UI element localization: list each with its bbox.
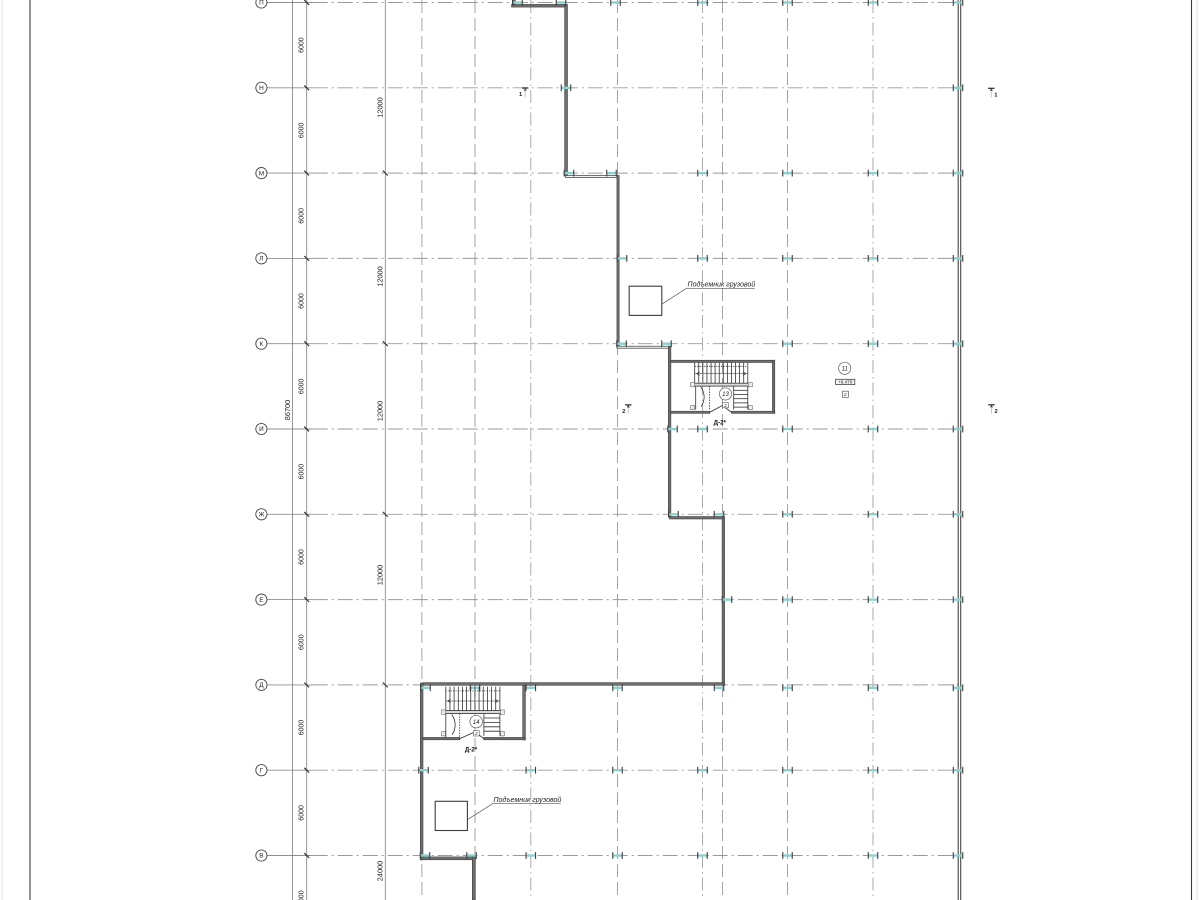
- svg-text:6000: 6000: [299, 123, 306, 139]
- svg-text:6000: 6000: [299, 634, 306, 650]
- svg-text:24000: 24000: [375, 861, 384, 882]
- svg-text:2: 2: [994, 409, 997, 415]
- svg-text:13: 13: [722, 392, 729, 398]
- svg-text:11: 11: [842, 367, 848, 373]
- svg-text:К: К: [260, 341, 264, 348]
- svg-text:Д-2*: Д-2*: [465, 747, 478, 754]
- svg-text:2: 2: [723, 403, 727, 408]
- svg-text:Д-2*: Д-2*: [714, 419, 727, 426]
- svg-text:2: 2: [622, 409, 625, 415]
- svg-text:12000: 12000: [375, 266, 384, 287]
- svg-text:М: М: [259, 170, 264, 177]
- svg-text:6000: 6000: [299, 37, 306, 53]
- svg-text:6000: 6000: [299, 805, 306, 821]
- svg-text:Подъемник грузовой: Подъемник грузовой: [494, 796, 562, 804]
- svg-text:6000: 6000: [299, 464, 306, 480]
- svg-text:6000: 6000: [299, 720, 306, 736]
- svg-text:И: И: [259, 426, 264, 433]
- svg-text:12000: 12000: [375, 565, 384, 586]
- svg-text:Д: Д: [259, 682, 264, 689]
- svg-text:6000: 6000: [299, 549, 306, 565]
- svg-text:+9.470: +9.470: [838, 380, 853, 385]
- svg-text:86700: 86700: [283, 400, 292, 421]
- svg-text:Н: Н: [259, 85, 264, 92]
- svg-text:2: 2: [474, 731, 478, 736]
- svg-text:Подъемник грузовой: Подъемник грузовой: [688, 281, 756, 289]
- svg-text:14: 14: [473, 720, 480, 726]
- svg-text:6000: 6000: [299, 293, 306, 309]
- svg-text:12000: 12000: [375, 401, 384, 422]
- svg-text:6000: 6000: [299, 208, 306, 224]
- svg-text:П: П: [259, 0, 264, 7]
- svg-text:6000: 6000: [299, 379, 306, 395]
- svg-text:Е: Е: [259, 597, 263, 604]
- svg-text:12000: 12000: [375, 97, 384, 118]
- svg-text:Л: Л: [259, 256, 263, 263]
- svg-text:Ж: Ж: [258, 512, 264, 519]
- svg-text:2: 2: [843, 392, 847, 398]
- svg-text:Г: Г: [260, 767, 264, 774]
- svg-text:В: В: [259, 853, 263, 860]
- svg-text:6000: 6000: [299, 890, 306, 900]
